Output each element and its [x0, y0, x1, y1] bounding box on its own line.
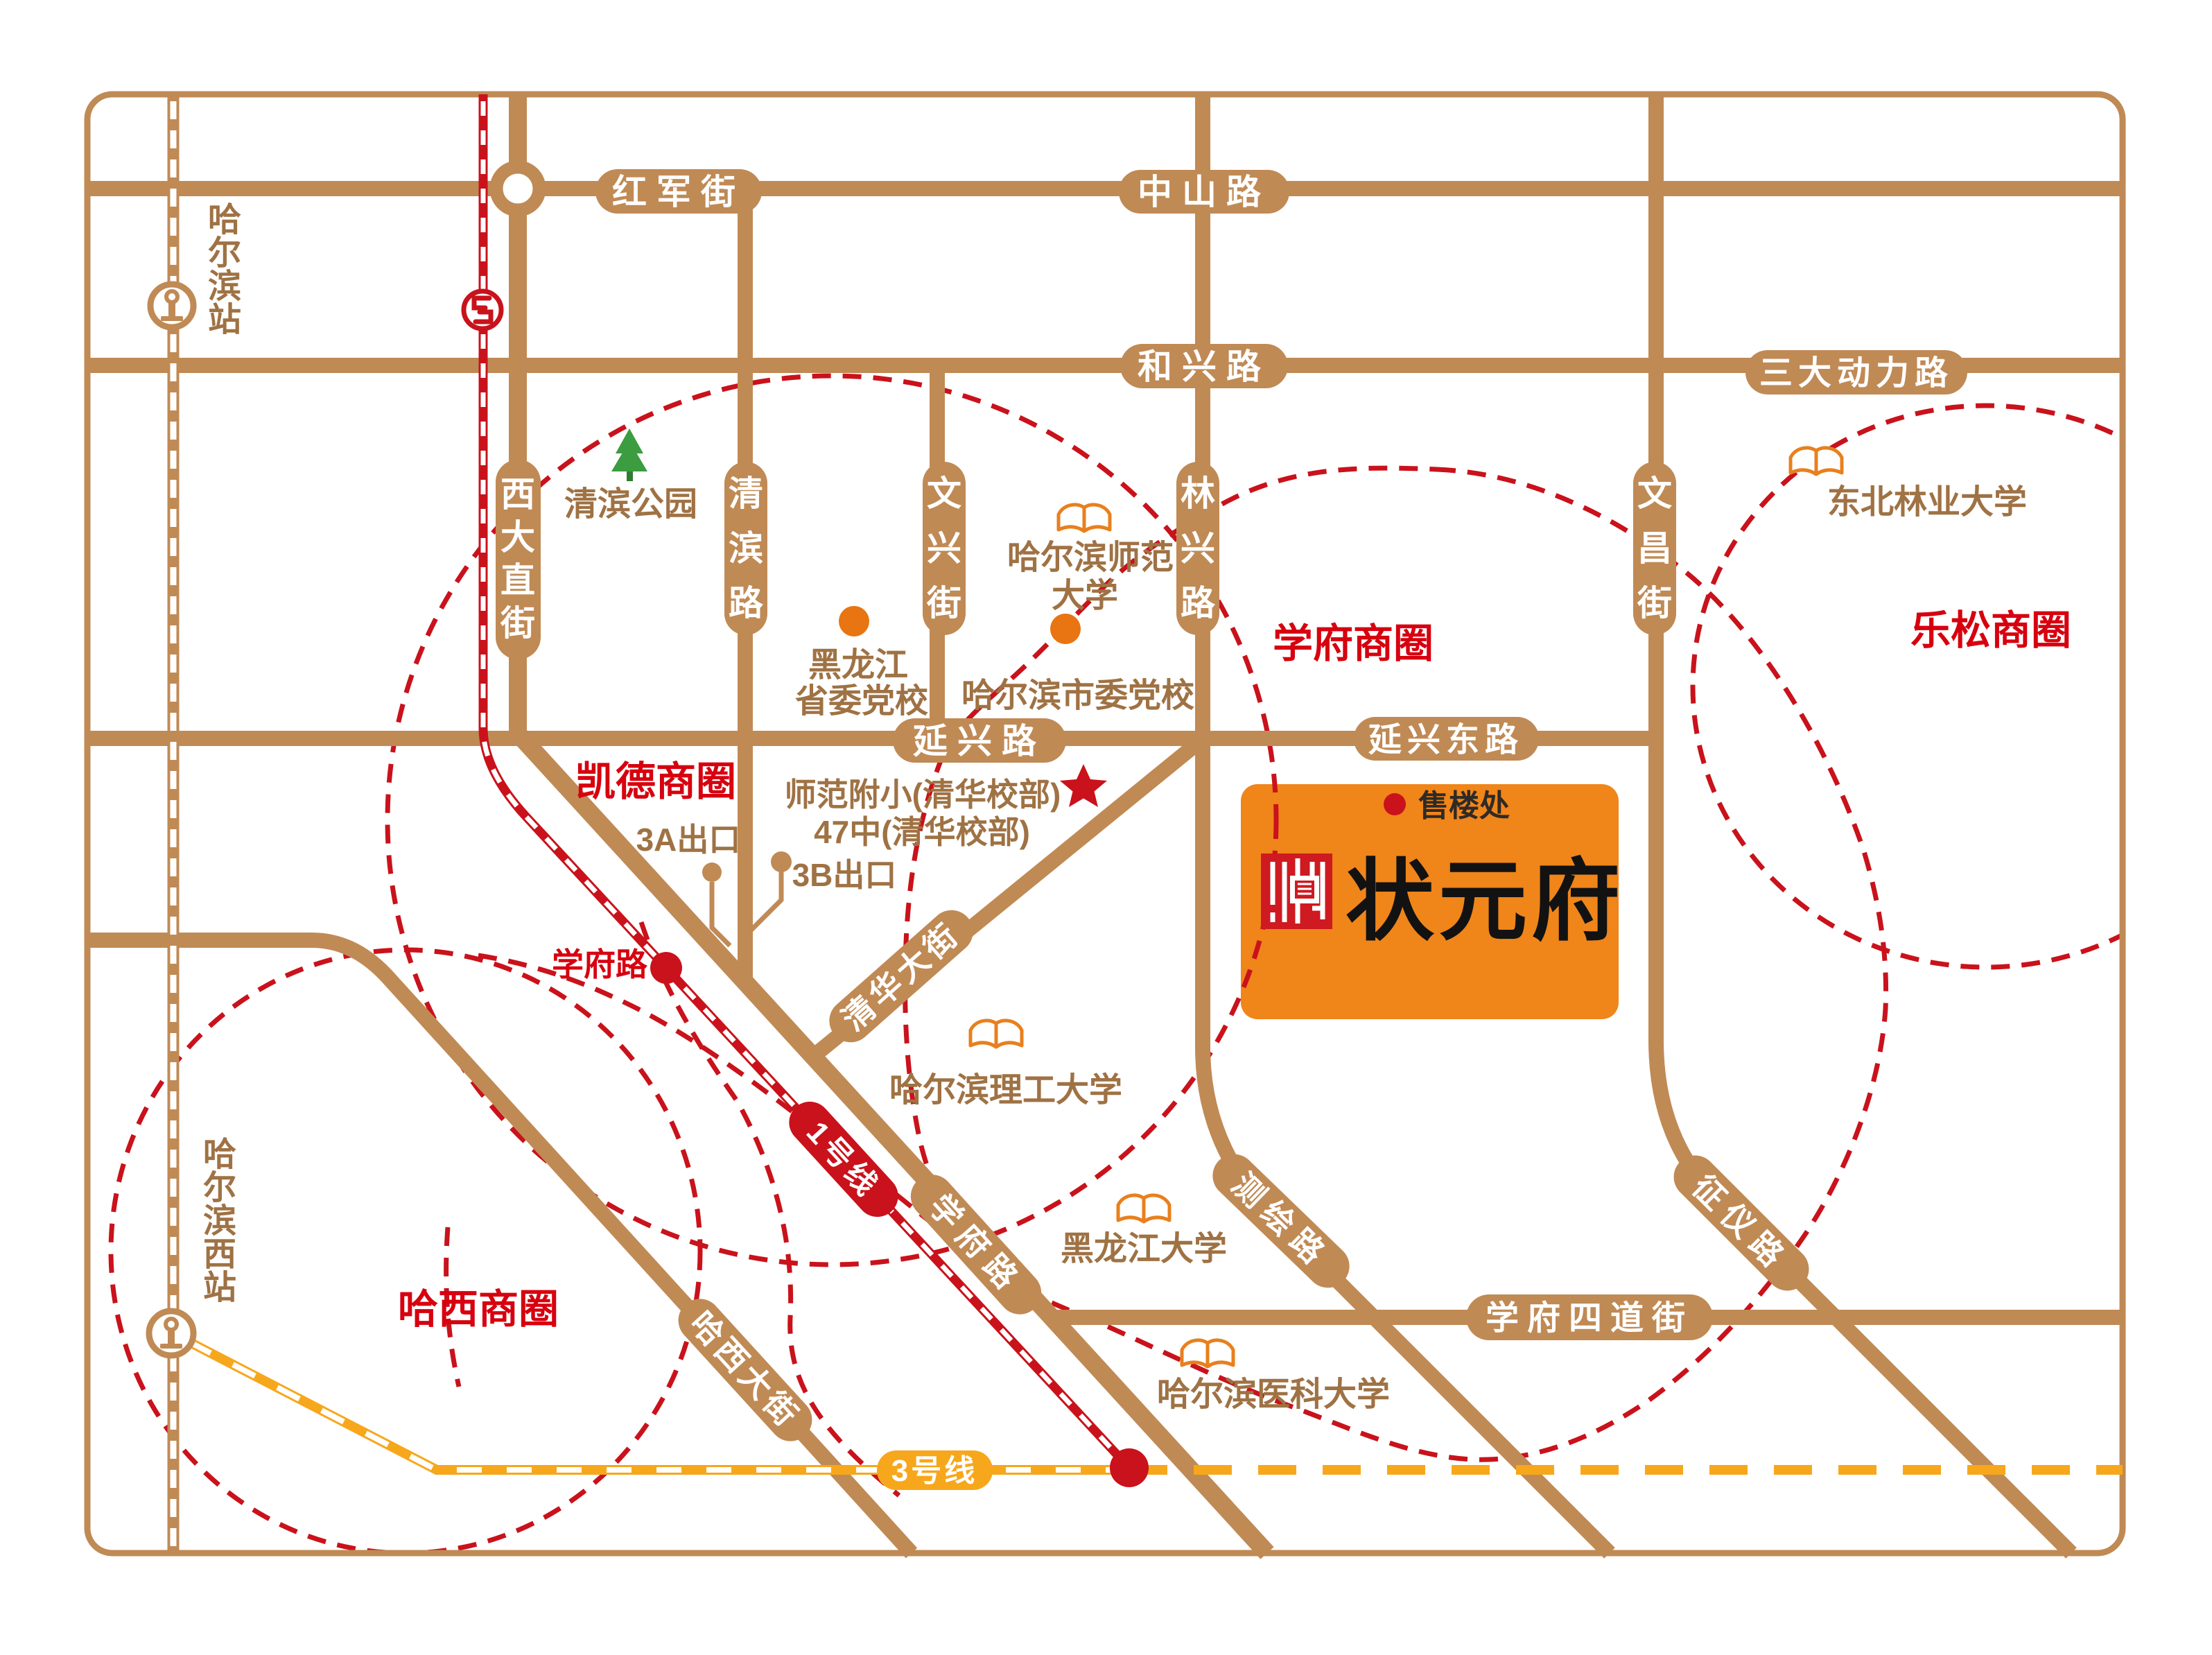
svg-text:红军街: 红军街: [612, 173, 745, 211]
svg-text:学府路: 学府路: [552, 946, 648, 982]
svg-text:哈尔滨理工大学: 哈尔滨理工大学: [889, 1072, 1122, 1109]
svg-text:清滨公园: 清滨公园: [564, 486, 697, 523]
svg-text:站: 站: [208, 302, 241, 338]
svg-text:乐松商圈: 乐松商圈: [1910, 608, 2071, 653]
svg-text:尔: 尔: [203, 1170, 236, 1206]
svg-text:直: 直: [500, 561, 535, 600]
svg-text:滨: 滨: [208, 268, 241, 305]
svg-text:兴: 兴: [1181, 529, 1215, 568]
svg-text:哈西商圈: 哈西商圈: [398, 1287, 559, 1332]
svg-text:街: 街: [500, 604, 535, 643]
svg-text:省委党校: 省委党校: [795, 683, 928, 720]
svg-text:站: 站: [203, 1270, 236, 1306]
svg-text:街: 街: [926, 584, 961, 623]
svg-text:中山路: 中山路: [1138, 173, 1271, 211]
svg-text:师范附小(清华校部): 师范附小(清华校部): [785, 777, 1061, 813]
svg-text:西: 西: [500, 475, 535, 514]
svg-text:大学: 大学: [1052, 578, 1118, 614]
svg-text:和兴路: 和兴路: [1138, 347, 1271, 386]
svg-text:尔: 尔: [208, 235, 241, 272]
svg-text:状元府: 状元府: [1346, 852, 1624, 951]
svg-text:47中(清华校部): 47中(清华校部): [814, 814, 1030, 850]
svg-text:3B出口: 3B出口: [792, 857, 897, 893]
svg-text:林: 林: [1181, 474, 1215, 513]
svg-text:滨: 滨: [203, 1203, 236, 1240]
svg-text:3A出口: 3A出口: [636, 822, 741, 858]
svg-text:兴: 兴: [927, 529, 961, 568]
svg-text:凯德商圈: 凯德商圈: [575, 759, 736, 804]
svg-text:哈尔滨师范: 哈尔滨师范: [1007, 539, 1174, 576]
svg-text:清: 清: [729, 474, 763, 513]
svg-text:3号线: 3号线: [891, 1454, 977, 1488]
svg-text:哈尔滨医科大学: 哈尔滨医科大学: [1157, 1376, 1390, 1413]
svg-text:哈尔滨市委党校: 哈尔滨市委党校: [961, 677, 1194, 714]
svg-text:滨: 滨: [729, 529, 763, 568]
svg-text:街: 街: [1637, 584, 1672, 623]
svg-text:学府商圈: 学府商圈: [1273, 621, 1434, 666]
svg-text:文: 文: [927, 474, 961, 513]
svg-text:售楼处: 售楼处: [1418, 789, 1510, 823]
svg-text:东北林业大学: 东北林业大学: [1827, 484, 2027, 521]
svg-text:学府四道街: 学府四道街: [1486, 1300, 1693, 1337]
svg-text:黑龙江: 黑龙江: [808, 647, 908, 684]
svg-text:延兴路: 延兴路: [913, 722, 1046, 761]
svg-text:西: 西: [203, 1236, 236, 1273]
svg-text:三大动力路: 三大动力路: [1759, 355, 1953, 392]
svg-text:延兴东路: 延兴东路: [1368, 722, 1524, 759]
svg-text:路: 路: [729, 584, 764, 623]
svg-text:大: 大: [500, 518, 535, 557]
svg-text:黑龙江大学: 黑龙江大学: [1061, 1231, 1227, 1267]
svg-text:哈: 哈: [203, 1136, 236, 1173]
svg-text:文: 文: [1637, 474, 1672, 513]
svg-text:路: 路: [1181, 584, 1216, 623]
svg-text:昌: 昌: [1637, 529, 1672, 568]
svg-text:哈: 哈: [208, 202, 241, 239]
